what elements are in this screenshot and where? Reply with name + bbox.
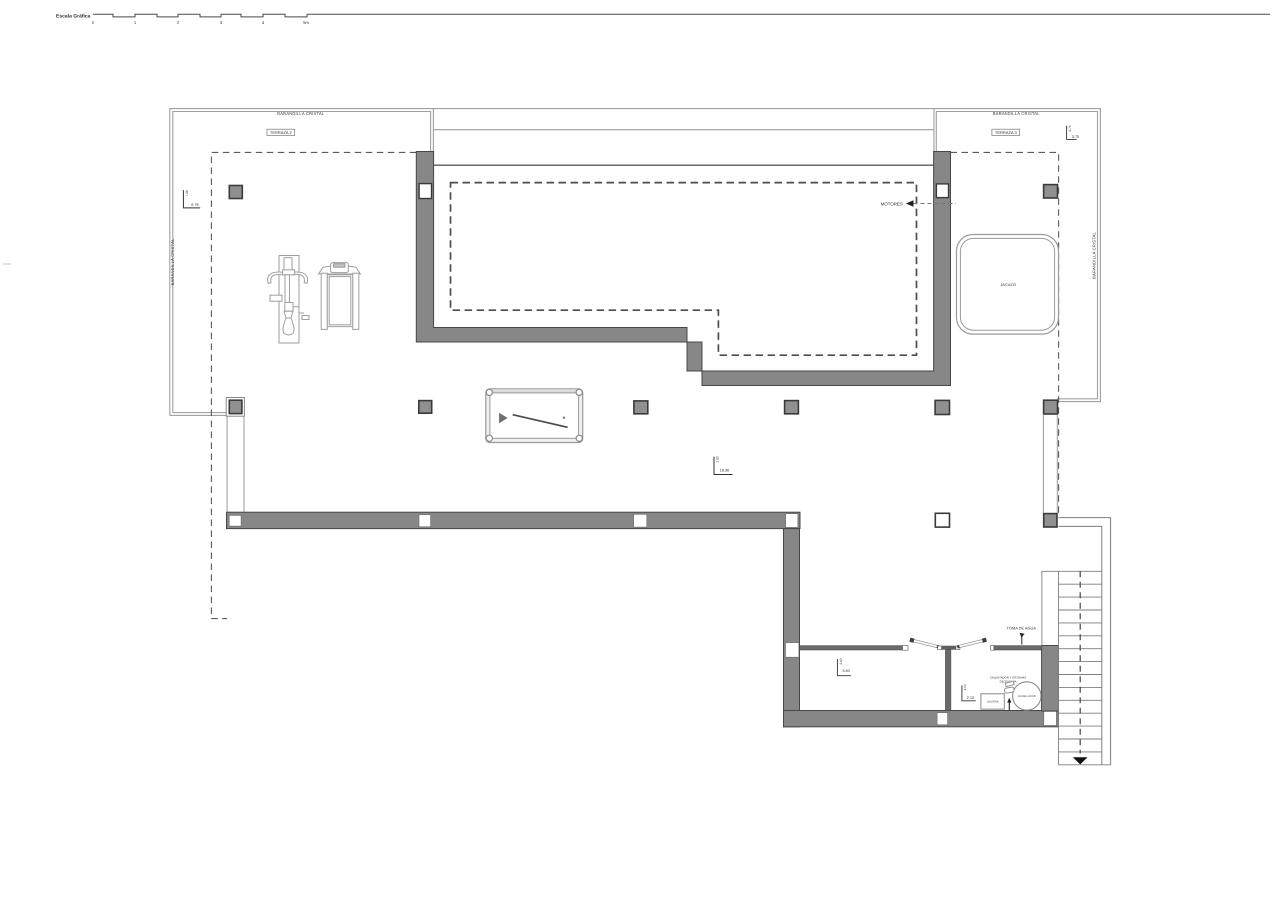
svg-text:CALDERA: CALDERA [987, 701, 999, 704]
svg-text:JACUZZI: JACUZZI [1000, 283, 1016, 287]
svg-text:MOTORES: MOTORES [881, 201, 903, 206]
svg-text:6.78: 6.78 [191, 203, 198, 207]
svg-text:7.08: 7.08 [185, 190, 189, 196]
svg-text:BARANDILLA CRISTAL: BARANDILLA CRISTAL [277, 111, 325, 116]
svg-text:TERRAZA 2: TERRAZA 2 [270, 130, 293, 135]
svg-text:3.40: 3.40 [842, 669, 849, 673]
svg-text:2.10: 2.10 [967, 696, 974, 700]
svg-text:2.75: 2.75 [1068, 125, 1072, 131]
svg-text:BARANDILLA CRISTAL: BARANDILLA CRISTAL [1092, 231, 1097, 279]
svg-text:3.75: 3.75 [1072, 135, 1079, 139]
svg-text:5m: 5m [303, 20, 309, 25]
svg-text:18.30: 18.30 [720, 469, 730, 473]
svg-text:ACUMULADOR: ACUMULADOR [1018, 695, 1036, 698]
svg-text:TERRAZA 3: TERRAZA 3 [995, 130, 1018, 135]
svg-text:BARANDILLA CRISTAL: BARANDILLA CRISTAL [170, 238, 175, 286]
svg-text:BARANDILLA CRISTAL: BARANDILLA CRISTAL [993, 111, 1041, 116]
svg-text:1.94: 1.94 [963, 684, 967, 690]
svg-text:TOMA DE AGUA: TOMA DE AGUA [1007, 626, 1037, 631]
svg-text:Escala Gráfica: Escala Gráfica [56, 14, 91, 20]
svg-text:2.62: 2.62 [839, 658, 843, 664]
svg-text:2.80: 2.80 [716, 456, 720, 462]
